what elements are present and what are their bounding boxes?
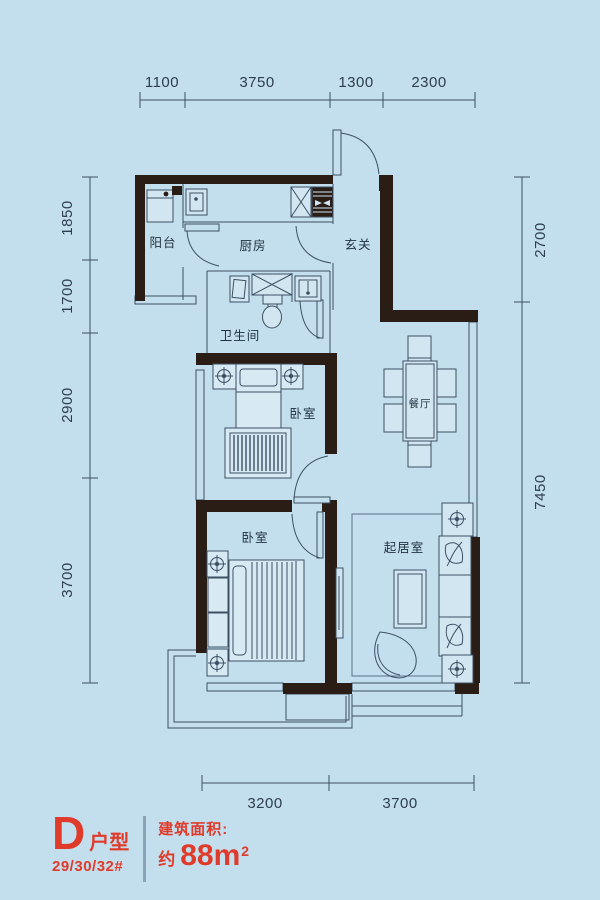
room-label-bedroom-top: 卧室 bbox=[289, 406, 316, 421]
toilet bbox=[263, 295, 283, 328]
room-label-dining: 餐厅 bbox=[409, 397, 432, 410]
shower bbox=[252, 274, 292, 295]
area-approx: 约 bbox=[158, 845, 175, 870]
room-label-kitchen: 厨房 bbox=[239, 238, 266, 253]
floorplan-svg: 阳台 厨房 玄关 卫生间 卧室 餐厅 卧室 起居室 1100 3750 1300… bbox=[0, 0, 600, 900]
dim-left-3: 2900 bbox=[59, 387, 76, 422]
balcony-door bbox=[185, 224, 219, 266]
balcony-furniture bbox=[147, 186, 182, 222]
striped-chest bbox=[225, 428, 291, 478]
unit-label: 户型 bbox=[89, 826, 129, 855]
entry-door bbox=[333, 130, 379, 175]
title-divider bbox=[143, 816, 146, 882]
bedroom-bottom-door bbox=[292, 512, 323, 558]
area-number: 88 bbox=[180, 841, 213, 871]
room-label-bath: 卫生间 bbox=[220, 329, 261, 343]
room-label-bedroom-bottom: 卧室 bbox=[241, 530, 268, 545]
floorplan-page: 阳台 厨房 玄关 卫生间 卧室 餐厅 卧室 起居室 1100 3750 1300… bbox=[0, 0, 600, 900]
dim-bottom-1: 3200 bbox=[247, 795, 282, 812]
dimension-right bbox=[514, 177, 530, 683]
room-label-entry: 玄关 bbox=[344, 237, 371, 252]
stove bbox=[312, 187, 333, 217]
bedroom-top-furniture bbox=[213, 364, 303, 478]
bedroom-top-door bbox=[294, 456, 330, 503]
dim-top-3: 1300 bbox=[338, 74, 373, 91]
kitchen-door bbox=[296, 226, 331, 263]
dim-right-1: 2700 bbox=[532, 222, 549, 257]
bedroom-bottom-furniture bbox=[207, 551, 304, 676]
dimension-top bbox=[140, 92, 475, 108]
fridge bbox=[291, 187, 311, 217]
area-caption: 建筑面积: bbox=[158, 818, 248, 839]
building-numbers: 29/30/32# bbox=[52, 858, 129, 875]
area-value: 约 88 m 2 bbox=[158, 841, 248, 871]
title-block: D 户型 29/30/32# 建筑面积: 约 88 m 2 bbox=[52, 812, 248, 884]
sofa bbox=[439, 536, 471, 656]
coffee-table bbox=[394, 570, 426, 628]
tv bbox=[336, 568, 343, 638]
dim-top-1: 1100 bbox=[145, 74, 179, 91]
area-exponent: 2 bbox=[241, 843, 249, 859]
armchair bbox=[375, 632, 416, 678]
kitchen-furniture bbox=[186, 187, 333, 217]
dim-top-4: 2300 bbox=[411, 74, 446, 91]
hall-basin bbox=[295, 276, 321, 301]
dim-top-2: 3750 bbox=[239, 74, 274, 91]
dimension-bottom bbox=[202, 775, 474, 791]
dim-right-2: 7450 bbox=[532, 474, 549, 509]
dimension-left bbox=[82, 177, 98, 683]
dim-left-1: 1850 bbox=[59, 200, 76, 235]
dim-bottom-2: 3700 bbox=[382, 795, 417, 812]
area-unit: m bbox=[214, 841, 241, 871]
dim-left-4: 3700 bbox=[59, 562, 76, 597]
dim-left-2: 1700 bbox=[59, 278, 76, 313]
bathroom-fixtures bbox=[230, 274, 321, 328]
doors bbox=[185, 130, 379, 558]
living-furniture bbox=[336, 503, 473, 683]
room-label-balcony: 阳台 bbox=[149, 235, 176, 250]
room-label-living: 起居室 bbox=[384, 540, 425, 555]
unit-letter: D bbox=[52, 812, 85, 856]
bathroom-door bbox=[300, 300, 323, 338]
vanity bbox=[230, 276, 249, 302]
